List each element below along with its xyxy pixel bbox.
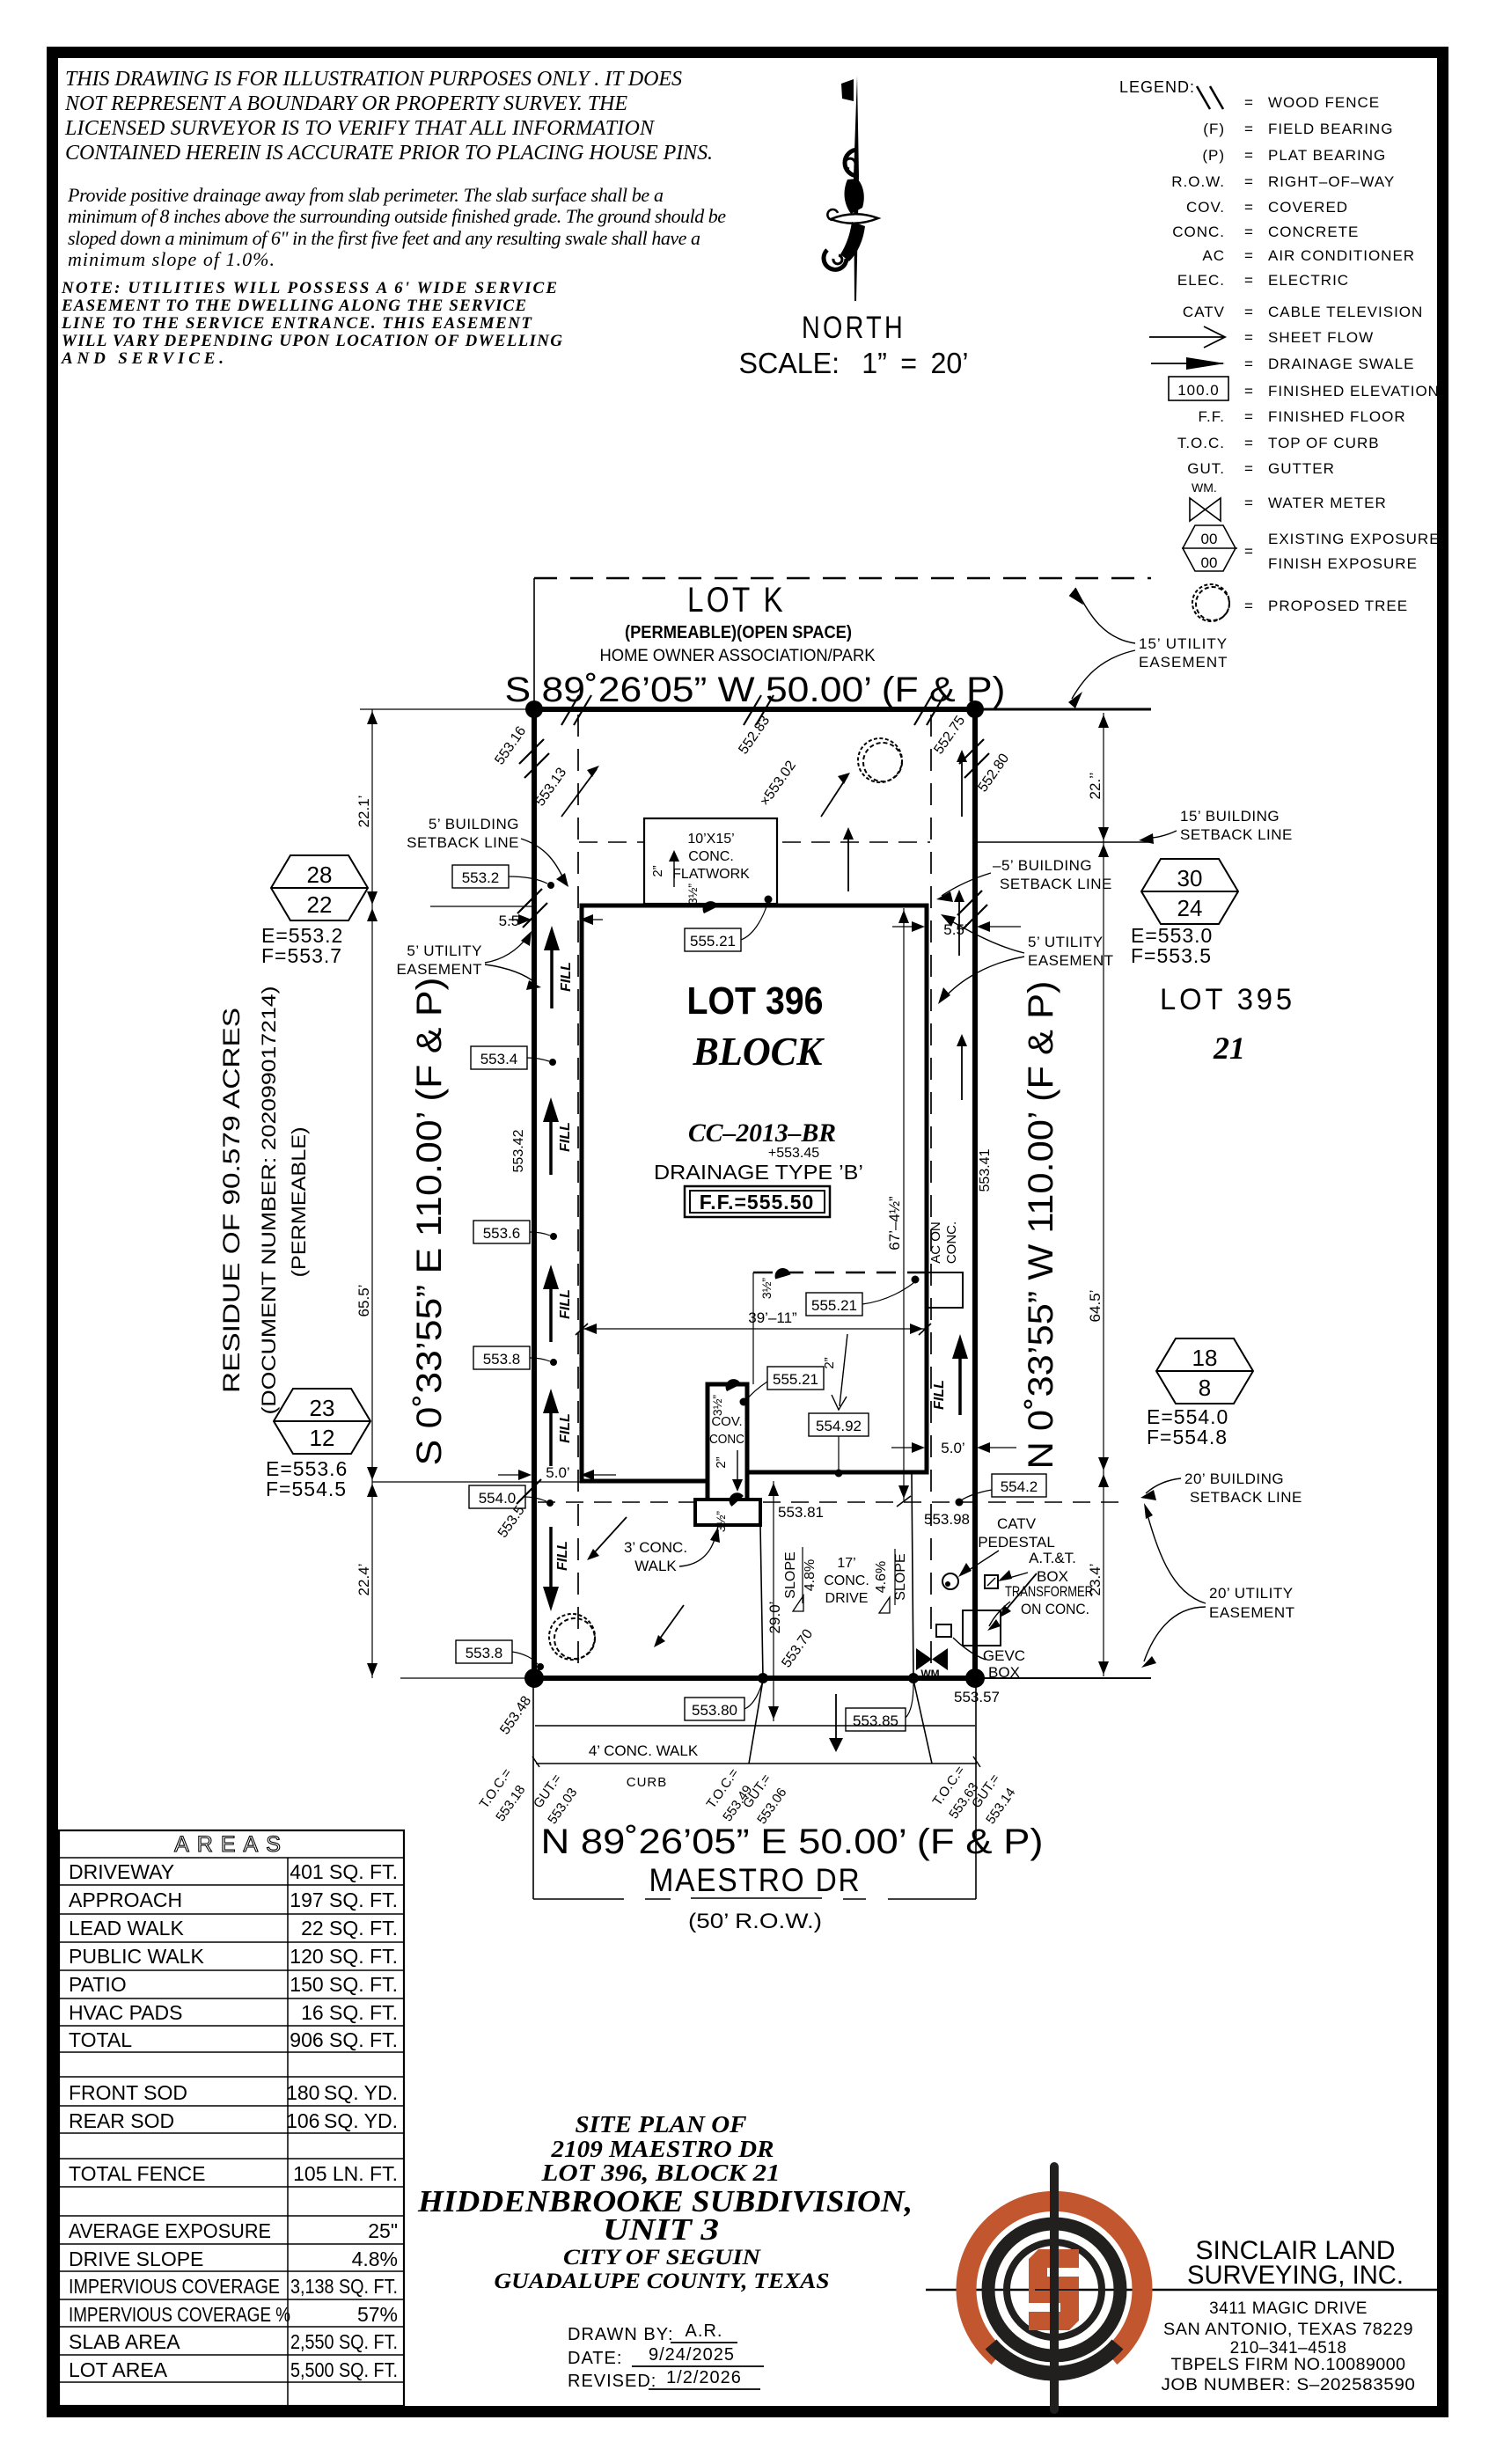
svg-text:=: = [1244,173,1254,190]
svg-text:=: = [1244,199,1254,216]
svg-text:5,500 SQ. FT.: 5,500 SQ. FT. [290,2358,398,2381]
svg-text:+553.45: +553.45 [768,1146,819,1161]
svg-text:DRAINAGE SWALE: DRAINAGE SWALE [1268,356,1414,372]
svg-text:ON CONC.: ON CONC. [1021,1601,1089,1617]
svg-text:=: = [1244,121,1254,137]
svg-text:LOT K: LOT K [687,581,786,620]
svg-text:F.F.=555.50: F.F.=555.50 [700,1191,815,1214]
svg-text:SETBACK LINE: SETBACK LINE [407,834,519,851]
svg-text:10’X15’: 10’X15’ [687,832,734,847]
svg-text:COV.: COV. [711,1414,742,1429]
svg-text:CC–2013–BR: CC–2013–BR [688,1118,836,1148]
svg-text:22 SQ. FT.: 22 SQ. FT. [301,1917,398,1940]
svg-text:EASEMENT: EASEMENT [1028,952,1114,969]
svg-text:180 SQ. YD.: 180 SQ. YD. [286,2081,398,2104]
svg-text:553.8: 553.8 [466,1645,503,1661]
svg-text:553.6: 553.6 [483,1225,521,1242]
svg-text:555.21: 555.21 [811,1297,857,1314]
svg-text:554.92: 554.92 [816,1418,862,1434]
svg-text:555.21: 555.21 [690,933,736,950]
svg-text:23: 23 [310,1395,335,1421]
svg-text:=: = [1244,356,1254,372]
svg-text:WILL VARY DEPENDING UPON LOCAT: WILL VARY DEPENDING UPON LOCATION OF DWE… [62,332,562,350]
svg-text:PLAT BEARING: PLAT BEARING [1268,147,1386,164]
svg-text:TOP OF CURB: TOP OF CURB [1268,435,1380,451]
svg-text:N 0˚33’55” W 110.00’ (F & P): N 0˚33’55” W 110.00’ (F & P) [1022,981,1060,1470]
svg-text:SLAB AREA: SLAB AREA [69,2330,180,2353]
svg-text:NOTE: UTILITIES WILL POSSESS A: NOTE: UTILITIES WILL POSSESS A 6' WIDE S… [61,279,557,297]
svg-text:minimum of 8 inches above the: minimum of 8 inches above the surroundin… [68,205,726,227]
svg-text:SCALE: 1” = 20’: SCALE: 1” = 20’ [739,347,969,379]
svg-text:FILL: FILL [558,1122,573,1152]
svg-text:18: 18 [1192,1345,1218,1371]
svg-text:3½”: 3½” [710,1395,724,1416]
svg-text:FRONT SOD: FRONT SOD [69,2081,187,2104]
svg-text:DRAWN BY:: DRAWN BY: [568,2325,674,2344]
svg-text:30: 30 [1177,865,1203,891]
svg-text:FILL: FILL [932,1380,947,1410]
svg-text:65.5’: 65.5’ [356,1285,372,1317]
svg-text:TBPELS FIRM NO.10089000: TBPELS FIRM NO.10089000 [1171,2356,1406,2374]
svg-text:S 0˚33’55” E 110.00’ (F & P): S 0˚33’55” E 110.00’ (F & P) [410,978,449,1466]
svg-text:WM: WM [920,1668,939,1680]
svg-text:FILL: FILL [558,1413,573,1443]
svg-text:AC: AC [1202,247,1225,264]
svg-text:EASEMENT: EASEMENT [1209,1604,1295,1621]
svg-text:DATE:: DATE: [568,2349,622,2368]
svg-text:CONC.: CONC. [1172,224,1225,240]
svg-text:RESIDUE OF 90.579 ACRES: RESIDUE OF 90.579 ACRES [218,1008,245,1393]
svg-text:PATIO: PATIO [69,1973,127,1996]
svg-text:IMPERVIOUS COVERAGE: IMPERVIOUS COVERAGE [69,2275,280,2298]
svg-text:29.0’: 29.0’ [766,1602,783,1634]
svg-text:5.0’: 5.0’ [546,1464,569,1481]
svg-text:21: 21 [1213,1030,1245,1066]
svg-text:A.R.: A.R. [686,2321,723,2341]
svg-text:105 LN. FT.: 105 LN. FT. [293,2162,398,2185]
svg-text:WALK: WALK [634,1558,677,1574]
svg-text:210–341–4518: 210–341–4518 [1230,2339,1347,2358]
svg-text:CONTAINED HEREIN IS ACCURATE P: CONTAINED HEREIN IS ACCURATE PRIOR TO PL… [65,142,713,165]
svg-text:5’ UTILITY: 5’ UTILITY [407,942,482,959]
svg-text:553.42: 553.42 [511,1129,526,1172]
svg-text:AIR CONDITIONER: AIR CONDITIONER [1268,247,1415,264]
svg-text:2”: 2” [822,1357,837,1368]
svg-text:553.85: 553.85 [853,1712,898,1729]
svg-text:553.80: 553.80 [692,1702,737,1719]
svg-text:LEAD WALK: LEAD WALK [69,1917,184,1940]
svg-text:EASEMENT: EASEMENT [1139,654,1228,671]
svg-text:FILL: FILL [558,1289,573,1319]
svg-text:FILL: FILL [555,1541,570,1571]
svg-text:553.4: 553.4 [480,1051,518,1067]
svg-text:N 89˚26’05” E 50.00’ (F & P): N 89˚26’05” E 50.00’ (F & P) [541,1822,1044,1861]
svg-text:15’ UTILITY: 15’ UTILITY [1139,635,1228,652]
svg-text:UNIT 3: UNIT 3 [603,2212,719,2247]
svg-text:4.6%: 4.6% [874,1561,889,1593]
svg-text:HVAC PADS: HVAC PADS [69,2001,183,2024]
svg-text:CURB: CURB [627,1775,668,1790]
svg-text:906 SQ. FT.: 906 SQ. FT. [290,2028,398,2051]
svg-text:4.8%: 4.8% [352,2248,398,2270]
svg-text:MAESTRO DR: MAESTRO DR [649,1862,862,1898]
svg-text:4.8%: 4.8% [803,1559,818,1591]
svg-text:8: 8 [1199,1375,1211,1401]
svg-text:=: = [1244,460,1254,477]
svg-text:BLOCK: BLOCK [693,1029,825,1074]
svg-text:SETBACK LINE: SETBACK LINE [1190,1489,1302,1506]
svg-text:100.0: 100.0 [1177,382,1220,399]
svg-text:NOT REPRESENT A BOUNDARY OR PR: NOT REPRESENT A BOUNDARY OR PROPERTY SUR… [64,92,627,115]
svg-text:401 SQ. FT.: 401 SQ. FT. [290,1860,398,1883]
svg-text:SLOPE: SLOPE [783,1551,798,1598]
svg-text:=: = [1244,383,1254,400]
svg-text:GUADALUPE COUNTY, TEXAS: GUADALUPE COUNTY, TEXAS [495,2270,830,2293]
svg-text:57%: 57% [357,2303,398,2326]
svg-text:2109 MAESTRO DR: 2109 MAESTRO DR [550,2136,774,2162]
svg-text:AND SERVICE.: AND SERVICE. [61,349,224,368]
svg-text:HOME OWNER ASSOCIATION/PARK: HOME OWNER ASSOCIATION/PARK [600,647,876,665]
svg-text:LICENSED SURVEYOR IS TO VERIFY: LICENSED SURVEYOR IS TO VERIFY THAT ALL … [64,117,656,140]
svg-text:=: = [1244,147,1254,164]
svg-text:F=553.7: F=553.7 [261,944,342,967]
svg-text:SITE PLAN OF: SITE PLAN OF [576,2111,747,2138]
svg-text:00: 00 [1201,531,1218,547]
svg-text:CITY OF SEGUIN: CITY OF SEGUIN [563,2246,761,2270]
svg-text:=: = [1244,272,1254,289]
svg-text:FINISHED ELEVATION: FINISHED ELEVATION [1268,383,1440,400]
svg-text:39’–11”: 39’–11” [748,1309,797,1326]
svg-text:=: = [1244,495,1254,511]
svg-text:LOT AREA: LOT AREA [69,2358,168,2381]
svg-text:BOX: BOX [988,1664,1020,1681]
svg-text:AVERAGE EXPOSURE: AVERAGE EXPOSURE [69,2219,271,2242]
svg-text:67’–4½”: 67’–4½” [886,1196,903,1250]
svg-text:S 89˚26’05” W 50.00’ (F & P): S 89˚26’05” W 50.00’ (F & P) [505,671,1006,709]
svg-text:GEVC: GEVC [983,1647,1025,1664]
svg-text:WATER METER: WATER METER [1268,495,1387,511]
svg-text:22: 22 [307,891,333,918]
svg-text:–5’ BUILDING: –5’ BUILDING [993,857,1092,874]
svg-text:PEDESTAL: PEDESTAL [978,1534,1055,1551]
svg-text:ELECTRIC: ELECTRIC [1268,272,1349,289]
svg-text:=: = [1244,94,1254,111]
svg-text:R.O.W.: R.O.W. [1171,173,1225,190]
svg-text:PUBLIC WALK: PUBLIC WALK [69,1945,204,1968]
svg-text:25": 25" [368,2219,398,2242]
svg-text:00: 00 [1201,554,1218,571]
svg-text:(50’ R.O.W.): (50’ R.O.W.) [688,1910,822,1933]
svg-text:5’ UTILITY: 5’ UTILITY [1028,934,1104,950]
svg-text:22.1’: 22.1’ [356,796,372,828]
svg-text:=: = [1244,329,1254,346]
svg-text:FIELD BEARING: FIELD BEARING [1268,121,1393,137]
svg-text:553.98: 553.98 [924,1511,970,1528]
svg-text:CONC: CONC [709,1432,744,1447]
svg-text:TOTAL: TOTAL [69,2028,132,2051]
svg-text:5.5’: 5.5’ [943,921,967,938]
svg-text:TRANSFORMER: TRANSFORMER [1005,1583,1093,1600]
svg-text:WOOD FENCE: WOOD FENCE [1268,94,1380,111]
svg-text:F=553.5: F=553.5 [1131,944,1212,967]
svg-text:COV.: COV. [1186,199,1225,216]
svg-text:EASEMENT: EASEMENT [396,961,482,978]
svg-text:3’ CONC.: 3’ CONC. [624,1539,687,1556]
svg-text:sloped down a minimum of 6" in: sloped down a minimum of 6" in the first… [68,227,700,249]
svg-text:FILL: FILL [559,962,574,992]
svg-text:120 SQ. FT.: 120 SQ. FT. [290,1945,398,1968]
svg-text:2”: 2” [714,1456,729,1468]
svg-text:SHEET FLOW: SHEET FLOW [1268,329,1374,346]
svg-text:SETBACK LINE: SETBACK LINE [1180,826,1293,843]
svg-text:554.0: 554.0 [479,1490,517,1507]
svg-text:EXISTING EXPOSURE: EXISTING EXPOSURE [1268,531,1441,547]
svg-text:NORTH: NORTH [802,311,906,345]
svg-text:TOTAL FENCE: TOTAL FENCE [69,2162,206,2185]
svg-text:LOT 396: LOT 396 [687,979,824,1023]
svg-text:24: 24 [1177,895,1203,921]
svg-text:APPROACH: APPROACH [69,1888,182,1911]
svg-text:22.’’: 22.’’ [1087,773,1104,800]
svg-text:FINISHED FLOOR: FINISHED FLOOR [1268,408,1406,425]
svg-text:9/24/2025: 9/24/2025 [649,2345,735,2365]
svg-text:F.F.: F.F. [1199,408,1225,425]
svg-text:555.21: 555.21 [773,1371,818,1388]
svg-text:22.4’: 22.4’ [356,1564,372,1596]
svg-text:(PERMEABLE)(OPEN SPACE): (PERMEABLE)(OPEN SPACE) [625,623,852,642]
svg-text:FINISH EXPOSURE: FINISH EXPOSURE [1268,555,1418,572]
svg-text:AC ON: AC ON [928,1221,943,1264]
svg-text:REAR SOD: REAR SOD [69,2109,174,2132]
svg-text:FLATWORK: FLATWORK [672,867,750,882]
svg-text:=: = [1244,435,1254,451]
svg-text:=: = [1244,408,1254,425]
svg-text:LEGEND:: LEGEND: [1119,78,1195,96]
svg-text:=: = [1244,598,1254,614]
svg-text:2,550 SQ. FT.: 2,550 SQ. FT. [290,2330,398,2353]
svg-text:3,138 SQ. FT.: 3,138 SQ. FT. [290,2275,398,2298]
svg-text:T.O.C.: T.O.C. [1177,435,1225,451]
svg-text:3411 MAGIC DRIVE: 3411 MAGIC DRIVE [1209,2299,1368,2318]
svg-text:GUTTER: GUTTER [1268,460,1335,477]
svg-text:16 SQ. FT.: 16 SQ. FT. [301,2001,398,2024]
svg-text:minimum slope of 1.0%.: minimum slope of 1.0%. [68,248,275,270]
svg-text:197 SQ. FT.: 197 SQ. FT. [290,1888,398,1911]
svg-text:Provide positive drainage away: Provide positive drainage away from slab… [67,184,664,206]
svg-text:LINE TO THE SERVICE ENTRANCE.: LINE TO THE SERVICE ENTRANCE. THIS EASEM… [61,314,532,333]
svg-text:4’ CONC. WALK: 4’ CONC. WALK [589,1742,699,1759]
svg-text:SETBACK LINE: SETBACK LINE [1000,876,1112,892]
svg-text:WM.: WM. [1192,480,1217,495]
svg-text:28: 28 [307,862,333,888]
svg-text:64.5’: 64.5’ [1087,1290,1104,1323]
svg-text:LOT 396, BLOCK 21: LOT 396, BLOCK 21 [540,2160,780,2186]
svg-text:DRIVE SLOPE: DRIVE SLOPE [69,2248,203,2270]
svg-text:20’ BUILDING: 20’ BUILDING [1184,1470,1284,1487]
svg-text:CONC.: CONC. [688,849,734,864]
svg-text:A.T.&T.: A.T.&T. [1029,1550,1076,1566]
svg-text:CATV: CATV [1183,304,1225,320]
svg-text:THIS DRAWING IS FOR ILLUSTRATI: THIS DRAWING IS FOR ILLUSTRATION PURPOSE… [65,68,682,91]
svg-text:(F): (F) [1203,121,1225,137]
svg-text:553.41: 553.41 [978,1148,993,1192]
svg-text:1/2/2026: 1/2/2026 [666,2368,742,2387]
svg-text:CATV: CATV [997,1515,1037,1532]
svg-text:CABLE TELEVISION: CABLE TELEVISION [1268,304,1423,320]
svg-text:PROPOSED TREE: PROPOSED TREE [1268,598,1408,614]
svg-text:GUT.: GUT. [1187,460,1225,477]
svg-text:=: = [1244,543,1254,560]
svg-text:5.0’: 5.0’ [941,1440,964,1456]
svg-text:554.2: 554.2 [1001,1478,1038,1495]
svg-text:RIGHT–OF–WAY: RIGHT–OF–WAY [1268,173,1395,190]
svg-text:(PERMEABLE): (PERMEABLE) [288,1127,310,1278]
svg-text:AREAS: AREAS [174,1832,289,1857]
svg-text:17’: 17’ [837,1556,855,1571]
svg-text:2”: 2” [650,865,665,876]
svg-text:F=554.8: F=554.8 [1147,1426,1228,1448]
svg-text:(DOCUMENT NUMBER: 202099017214: (DOCUMENT NUMBER: 202099017214) [258,986,280,1415]
svg-text:DRAINAGE TYPE ’B’: DRAINAGE TYPE ’B’ [654,1161,863,1184]
svg-text:CONC.: CONC. [944,1221,959,1264]
svg-text:15’ BUILDING: 15’ BUILDING [1180,808,1280,825]
svg-text:5’ BUILDING: 5’ BUILDING [429,816,519,832]
svg-text:(P): (P) [1202,147,1225,164]
svg-text:553.57: 553.57 [954,1689,1000,1705]
svg-text:JOB NUMBER: S–202583590: JOB NUMBER: S–202583590 [1162,2376,1416,2394]
svg-text:3½”: 3½” [714,1511,728,1532]
svg-text:IMPERVIOUS COVERAGE %: IMPERVIOUS COVERAGE % [69,2303,290,2326]
svg-text:CONC.: CONC. [824,1573,869,1588]
svg-text:F=554.5: F=554.5 [266,1478,347,1500]
svg-text:553.2: 553.2 [462,869,500,886]
svg-text:=: = [1244,304,1254,320]
svg-text:553.8: 553.8 [483,1351,521,1368]
svg-text:REVISED:: REVISED: [568,2372,656,2391]
svg-text:EASEMENT TO THE DWELLING ALONG: EASEMENT TO THE DWELLING ALONG THE SERVI… [61,297,526,315]
svg-text:ELEC.: ELEC. [1177,272,1225,289]
svg-text:SAN ANTONIO, TEXAS 78229: SAN ANTONIO, TEXAS 78229 [1163,2321,1413,2339]
svg-text:3½”: 3½” [759,1278,774,1299]
svg-text:12: 12 [310,1425,335,1451]
svg-text:DRIVE: DRIVE [825,1591,869,1606]
svg-text:=: = [1244,247,1254,264]
svg-text:COVERED: COVERED [1268,199,1348,216]
svg-text:106 SQ. YD.: 106 SQ. YD. [286,2109,398,2132]
svg-text:150 SQ. FT.: 150 SQ. FT. [290,1973,398,1996]
svg-text:LOT 395: LOT 395 [1160,983,1295,1016]
svg-text:CONCRETE: CONCRETE [1268,224,1359,240]
svg-text:3½”: 3½” [686,884,700,905]
svg-text:=: = [1244,224,1254,240]
svg-text:DRIVEWAY: DRIVEWAY [69,1860,174,1883]
svg-text:553.81: 553.81 [778,1504,824,1521]
svg-text:20’ UTILITY: 20’ UTILITY [1209,1585,1294,1602]
svg-text:SURVEYING, INC.: SURVEYING, INC. [1187,2261,1404,2290]
